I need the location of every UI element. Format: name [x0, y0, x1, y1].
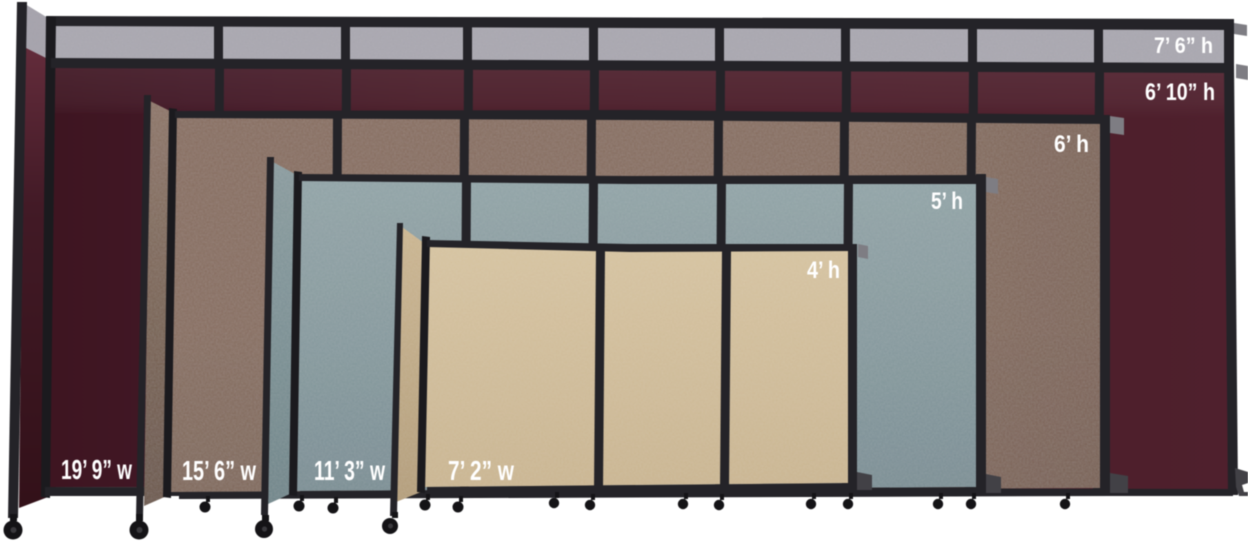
svg-text:11’ 3” w: 11’ 3” w [314, 455, 385, 486]
svg-text:6’ 10” h: 6’ 10” h [1145, 79, 1215, 106]
svg-text:5’ h: 5’ h [931, 188, 963, 215]
svg-text:7’ 6” h: 7’ 6” h [1154, 33, 1213, 58]
svg-text:19’ 9” w: 19’ 9” w [61, 454, 132, 485]
svg-text:6’ h: 6’ h [1054, 131, 1089, 158]
svg-text:4’ h: 4’ h [807, 257, 840, 284]
svg-text:7’ 2” w: 7’ 2” w [448, 455, 514, 486]
svg-text:15’ 6” w: 15’ 6” w [182, 455, 256, 486]
